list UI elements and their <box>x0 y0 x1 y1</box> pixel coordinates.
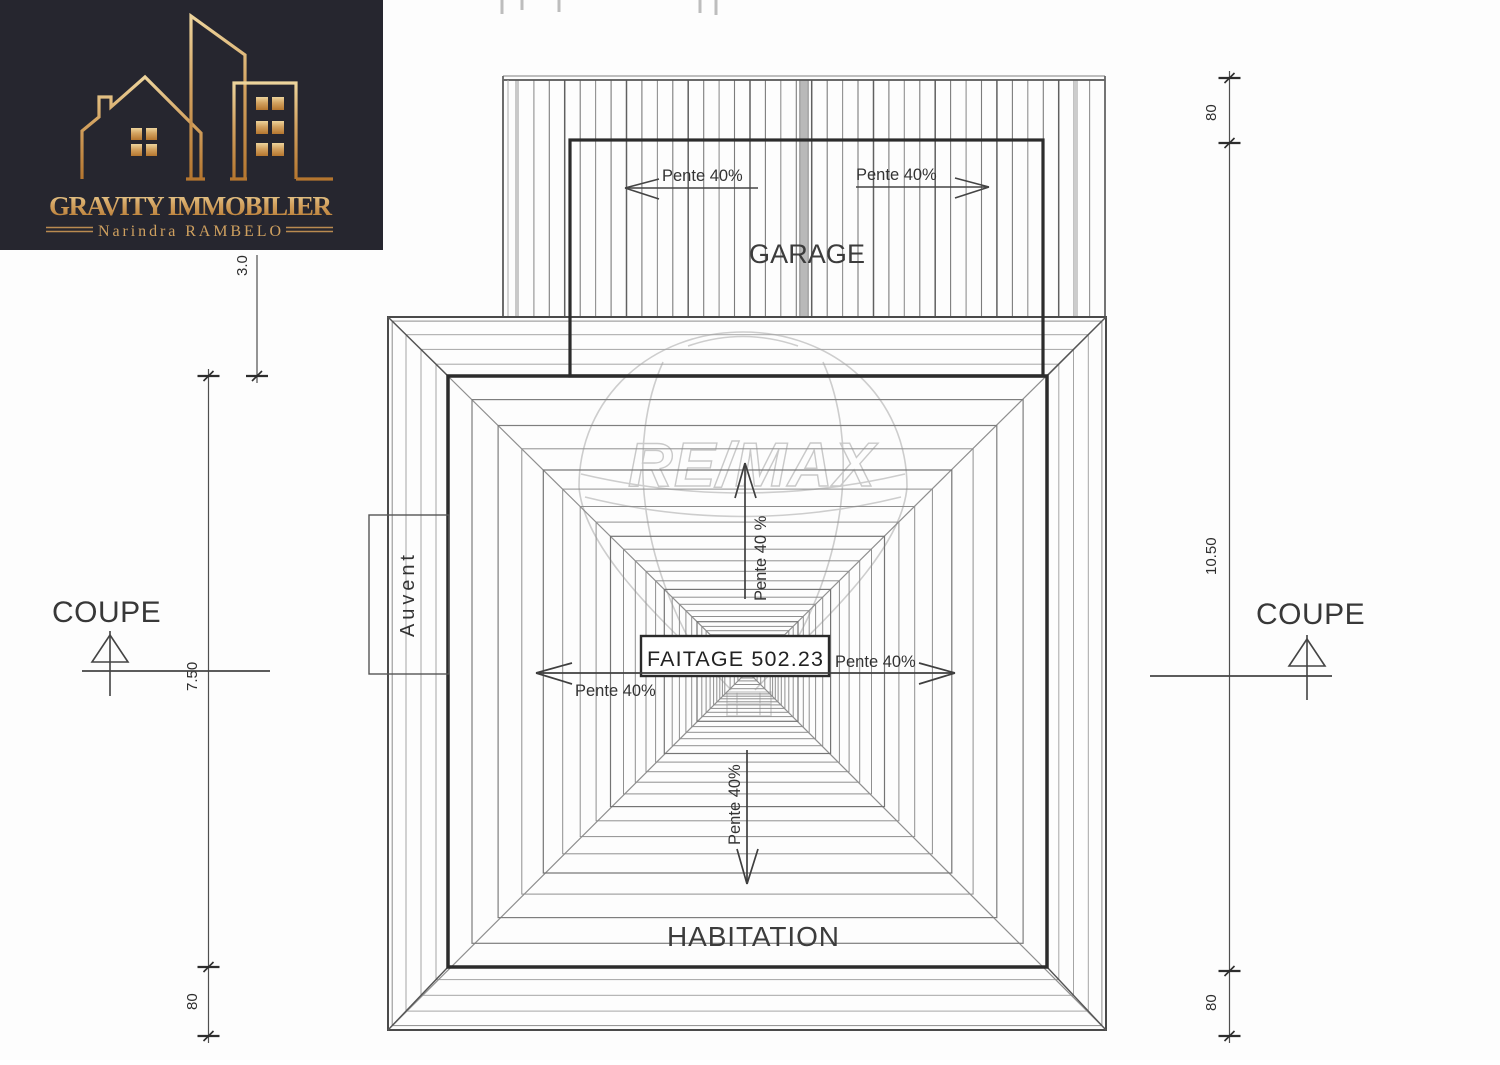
svg-text:80: 80 <box>184 993 201 1010</box>
svg-text:Narindra RAMBELO: Narindra RAMBELO <box>98 223 281 240</box>
svg-text:80: 80 <box>1203 994 1220 1011</box>
svg-text:Pente 40%: Pente 40% <box>835 653 916 671</box>
svg-text:GARAGE: GARAGE <box>749 239 865 269</box>
svg-text:HABITATION: HABITATION <box>667 921 839 952</box>
svg-text:COUPE: COUPE <box>52 596 161 629</box>
svg-text:10.50: 10.50 <box>1203 537 1220 575</box>
svg-text:80: 80 <box>1203 104 1220 121</box>
svg-text:Pente 40%: Pente 40% <box>662 167 743 185</box>
svg-text:3.0: 3.0 <box>234 255 251 276</box>
svg-text:Pente 40%: Pente 40% <box>856 166 937 184</box>
svg-text:7.50: 7.50 <box>184 662 201 691</box>
svg-text:Pente 40%: Pente 40% <box>575 682 656 700</box>
svg-text:Pente 40%: Pente 40% <box>726 764 744 845</box>
svg-text:FAITAGE 502.23: FAITAGE 502.23 <box>647 647 823 671</box>
svg-text:COUPE: COUPE <box>1256 598 1365 631</box>
svg-text:GRAVITY IMMOBILIER: GRAVITY IMMOBILIER <box>49 191 333 221</box>
svg-text:Pente 40 %: Pente 40 % <box>752 515 770 601</box>
svg-text:Auvent: Auvent <box>397 555 419 637</box>
